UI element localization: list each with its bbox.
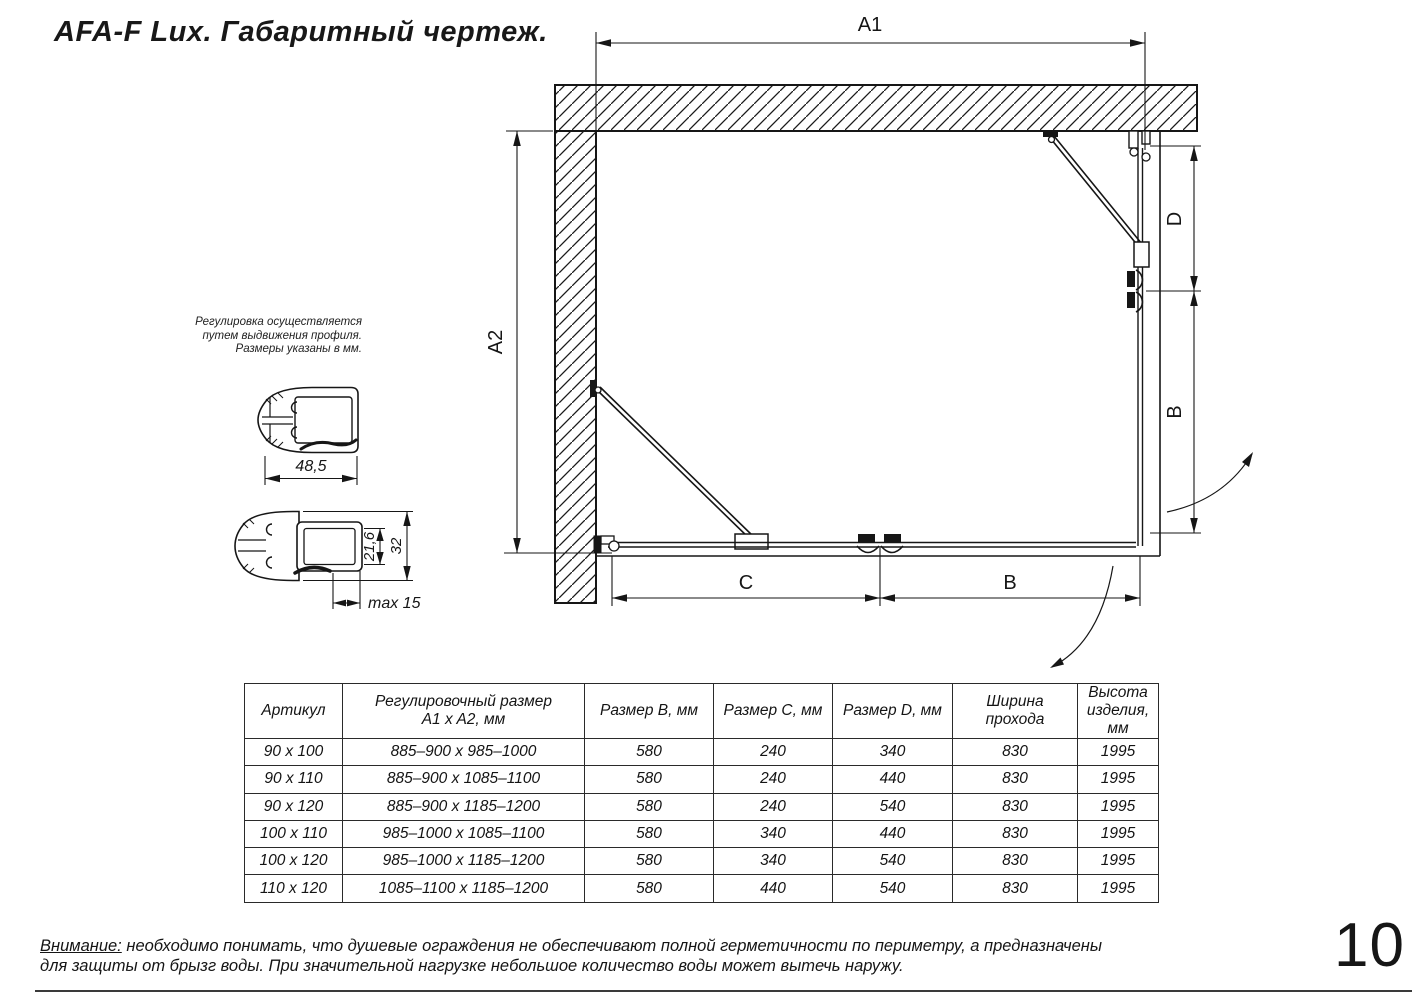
col-header-article: Артикул <box>245 684 343 739</box>
profile-section-top <box>258 388 358 453</box>
table-cell: 90 x 100 <box>245 739 343 766</box>
table-row: 90 x 120885–900 x 1185–12005802405408301… <box>245 793 1159 820</box>
table-cell: 1995 <box>1078 875 1159 902</box>
table-cell: 830 <box>953 739 1078 766</box>
table-cell: 540 <box>833 793 953 820</box>
table-cell: 340 <box>714 848 833 875</box>
size-table: Артикул Регулировочный размер A1 x A2, м… <box>244 683 1159 903</box>
support-bar-left <box>590 380 768 549</box>
enclosure-frame <box>596 131 1160 556</box>
side-glass-panel <box>1138 148 1143 546</box>
table-cell: 830 <box>953 793 1078 820</box>
table-cell: 830 <box>953 766 1078 793</box>
dim-label-b-side: B <box>1164 405 1186 418</box>
table-row: 100 x 110985–1000 x 1085–110058034044083… <box>245 820 1159 847</box>
table-cell: 1085–1100 x 1185–1200 <box>343 875 585 902</box>
warning-text: Внимание: необходимо понимать, что душев… <box>40 936 1220 976</box>
dim-label-profile2-outer: 32 <box>388 537 405 554</box>
col-header-size-c: Размер C, мм <box>714 684 833 739</box>
table-cell: 1995 <box>1078 848 1159 875</box>
table-row: 110 x 1201085–1100 x 1185–12005804405408… <box>245 875 1159 902</box>
dim-label-profile2-inner: 21,6 <box>361 531 378 562</box>
size-table-body: 90 x 100885–900 x 985–100058024034083019… <box>245 739 1159 903</box>
col-header-size-d: Размер D, мм <box>833 684 953 739</box>
table-cell: 830 <box>953 848 1078 875</box>
table-cell: 1995 <box>1078 766 1159 793</box>
side-panel-top-bracket <box>1129 131 1150 161</box>
table-cell: 830 <box>953 820 1078 847</box>
table-row: 90 x 110885–900 x 1085–11005802404408301… <box>245 766 1159 793</box>
table-cell: 885–900 x 1185–1200 <box>343 793 585 820</box>
page-number: 10 <box>1334 910 1405 981</box>
table-cell: 580 <box>585 766 714 793</box>
table-cell: 340 <box>833 739 953 766</box>
dim-label-a1: A1 <box>858 14 882 36</box>
table-row: 100 x 120985–1000 x 1185–120058034054083… <box>245 848 1159 875</box>
table-cell: 580 <box>585 739 714 766</box>
table-row: 90 x 100885–900 x 985–100058024034083019… <box>245 739 1159 766</box>
table-cell: 100 x 110 <box>245 820 343 847</box>
table-cell: 580 <box>585 820 714 847</box>
dim-right-side <box>1146 146 1201 533</box>
table-cell: 580 <box>585 848 714 875</box>
table-cell: 110 x 120 <box>245 875 343 902</box>
table-cell: 885–900 x 985–1000 <box>343 739 585 766</box>
dim-label-c: C <box>739 572 753 594</box>
table-cell: 90 x 120 <box>245 793 343 820</box>
dim-label-profile2-max: max 15 <box>368 595 421 612</box>
table-cell: 540 <box>833 875 953 902</box>
warning-line-2: для защиты от брызг воды. При значительн… <box>40 956 1220 976</box>
col-header-size-b: Размер B, мм <box>585 684 714 739</box>
dim-label-d: D <box>1164 212 1186 226</box>
col-header-pass-width: Ширина прохода <box>953 684 1078 739</box>
warning-label: Внимание: <box>40 937 122 955</box>
wall-top <box>555 85 1197 131</box>
footer-rule <box>35 990 1412 992</box>
dim-label-b-front: B <box>1003 572 1016 594</box>
col-header-adjustment-size: Регулировочный размер A1 x A2, мм <box>343 684 585 739</box>
warning-line-1: Внимание: необходимо понимать, что душев… <box>40 936 1220 956</box>
table-cell: 1995 <box>1078 739 1159 766</box>
table-cell: 440 <box>833 820 953 847</box>
table-cell: 90 x 110 <box>245 766 343 793</box>
col-header-height: Высота изделия, мм <box>1078 684 1159 739</box>
table-cell: 985–1000 x 1185–1200 <box>343 848 585 875</box>
side-door-handle <box>1127 270 1142 312</box>
door-swing-arc-front <box>1050 566 1113 668</box>
table-cell: 440 <box>833 766 953 793</box>
dim-label-a2: A2 <box>485 330 507 354</box>
front-panel-wall-bracket <box>594 536 619 553</box>
table-cell: 1995 <box>1078 820 1159 847</box>
table-cell: 580 <box>585 875 714 902</box>
table-cell: 240 <box>714 766 833 793</box>
table-cell: 440 <box>714 875 833 902</box>
door-swing-arc-side <box>1167 452 1253 512</box>
profile-section-bottom <box>235 512 362 581</box>
table-cell: 540 <box>833 848 953 875</box>
table-cell: 100 x 120 <box>245 848 343 875</box>
table-cell: 1995 <box>1078 793 1159 820</box>
size-table-header-row: Артикул Регулировочный размер A1 x A2, м… <box>245 684 1159 739</box>
catalog-page: { "page": { "title": "AFA-F Lux. Габарит… <box>0 0 1415 1000</box>
table-cell: 985–1000 x 1085–1100 <box>343 820 585 847</box>
table-cell: 240 <box>714 739 833 766</box>
table-cell: 240 <box>714 793 833 820</box>
table-cell: 580 <box>585 793 714 820</box>
warning-line-1-rest: необходимо понимать, что душевые огражде… <box>122 937 1102 955</box>
table-cell: 885–900 x 1085–1100 <box>343 766 585 793</box>
front-glass-panel <box>608 543 1136 548</box>
dim-label-profile1-width: 48,5 <box>295 458 326 475</box>
table-cell: 830 <box>953 875 1078 902</box>
wall-left <box>555 131 596 603</box>
table-cell: 340 <box>714 820 833 847</box>
